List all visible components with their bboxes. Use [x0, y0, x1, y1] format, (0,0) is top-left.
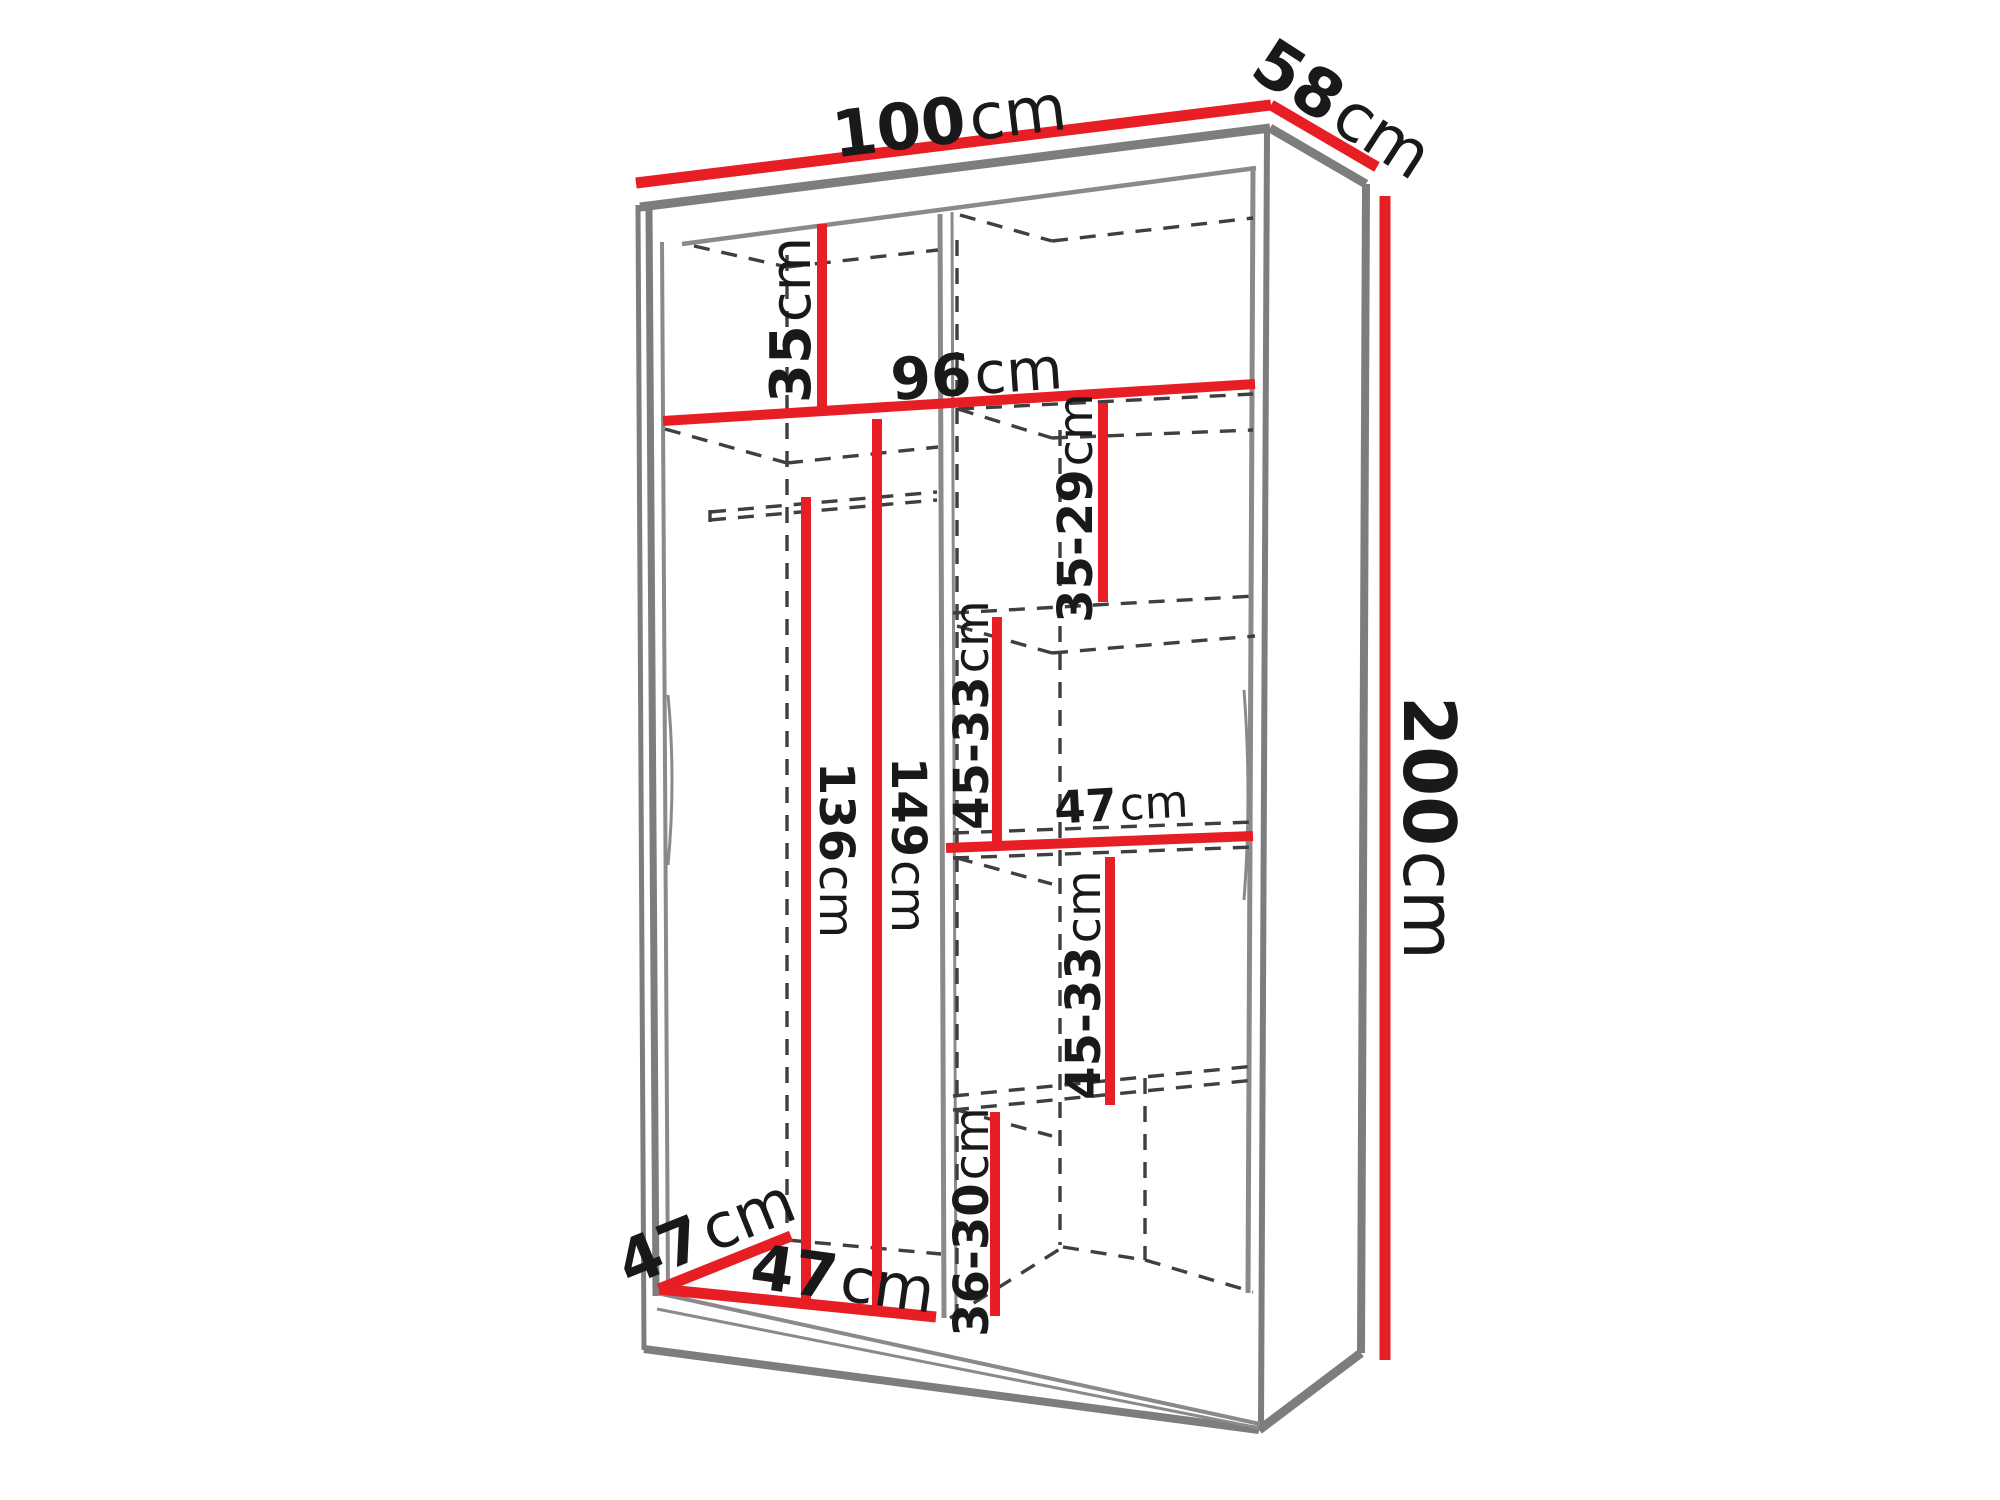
side-right-edge [1361, 184, 1366, 1353]
side-bottom-edge [1259, 1353, 1361, 1430]
right-front-edge [1261, 132, 1267, 1425]
interior-ceiling-edge [682, 168, 1256, 244]
top-shelf-back-line [787, 447, 938, 463]
dimension-lines [636, 105, 1385, 1360]
right-floor-side-line [1145, 1260, 1253, 1292]
dimension-labels: 100cm 58cm 200cm 35cm 96cm 35-29cm 45-33… [607, 23, 1471, 1336]
left-inner-edge [662, 242, 668, 1292]
right-inner-wall [1248, 170, 1253, 1293]
diagram-canvas: 100cm 58cm 200cm 35cm 96cm 35-29cm 45-33… [0, 0, 2000, 1500]
shelf3-depth-line [957, 858, 1052, 884]
shelf1-depth-line [958, 409, 1052, 438]
right-ceiling-depth-line [960, 215, 1052, 241]
label-interior-width: 96cm [888, 334, 1064, 414]
top-shelf-depth-line [665, 429, 787, 463]
label-rail-height: 136cm [808, 762, 864, 938]
left-door-handle-groove [668, 695, 672, 865]
label-right-shelf-3: 45-33cm [1056, 870, 1112, 1100]
shelf2-back-line [1052, 636, 1255, 653]
right-floor-back-line [1063, 1247, 1145, 1260]
left-front-edge [649, 206, 656, 1296]
wardrobe-dimension-diagram: 100cm 58cm 200cm 35cm 96cm 35-29cm 45-33… [0, 0, 2000, 1500]
label-overall-height: 200cm [1387, 696, 1471, 960]
right-ceiling-back-line [1052, 218, 1253, 241]
label-right-shelf-2: 45-33cm [944, 600, 1000, 830]
label-top-compartment: 35cm [759, 237, 824, 403]
label-left-interior-height: 149cm [880, 757, 936, 933]
label-right-shelf-1: 35-29cm [1048, 393, 1104, 623]
left-outer-edge [638, 205, 644, 1350]
label-right-shelf-4: 36-30cm [944, 1107, 1000, 1337]
right-door-handle-groove [1244, 690, 1248, 900]
bottom-outer-edge [644, 1349, 1259, 1430]
label-right-shelf-width: 47cm [1053, 775, 1190, 835]
